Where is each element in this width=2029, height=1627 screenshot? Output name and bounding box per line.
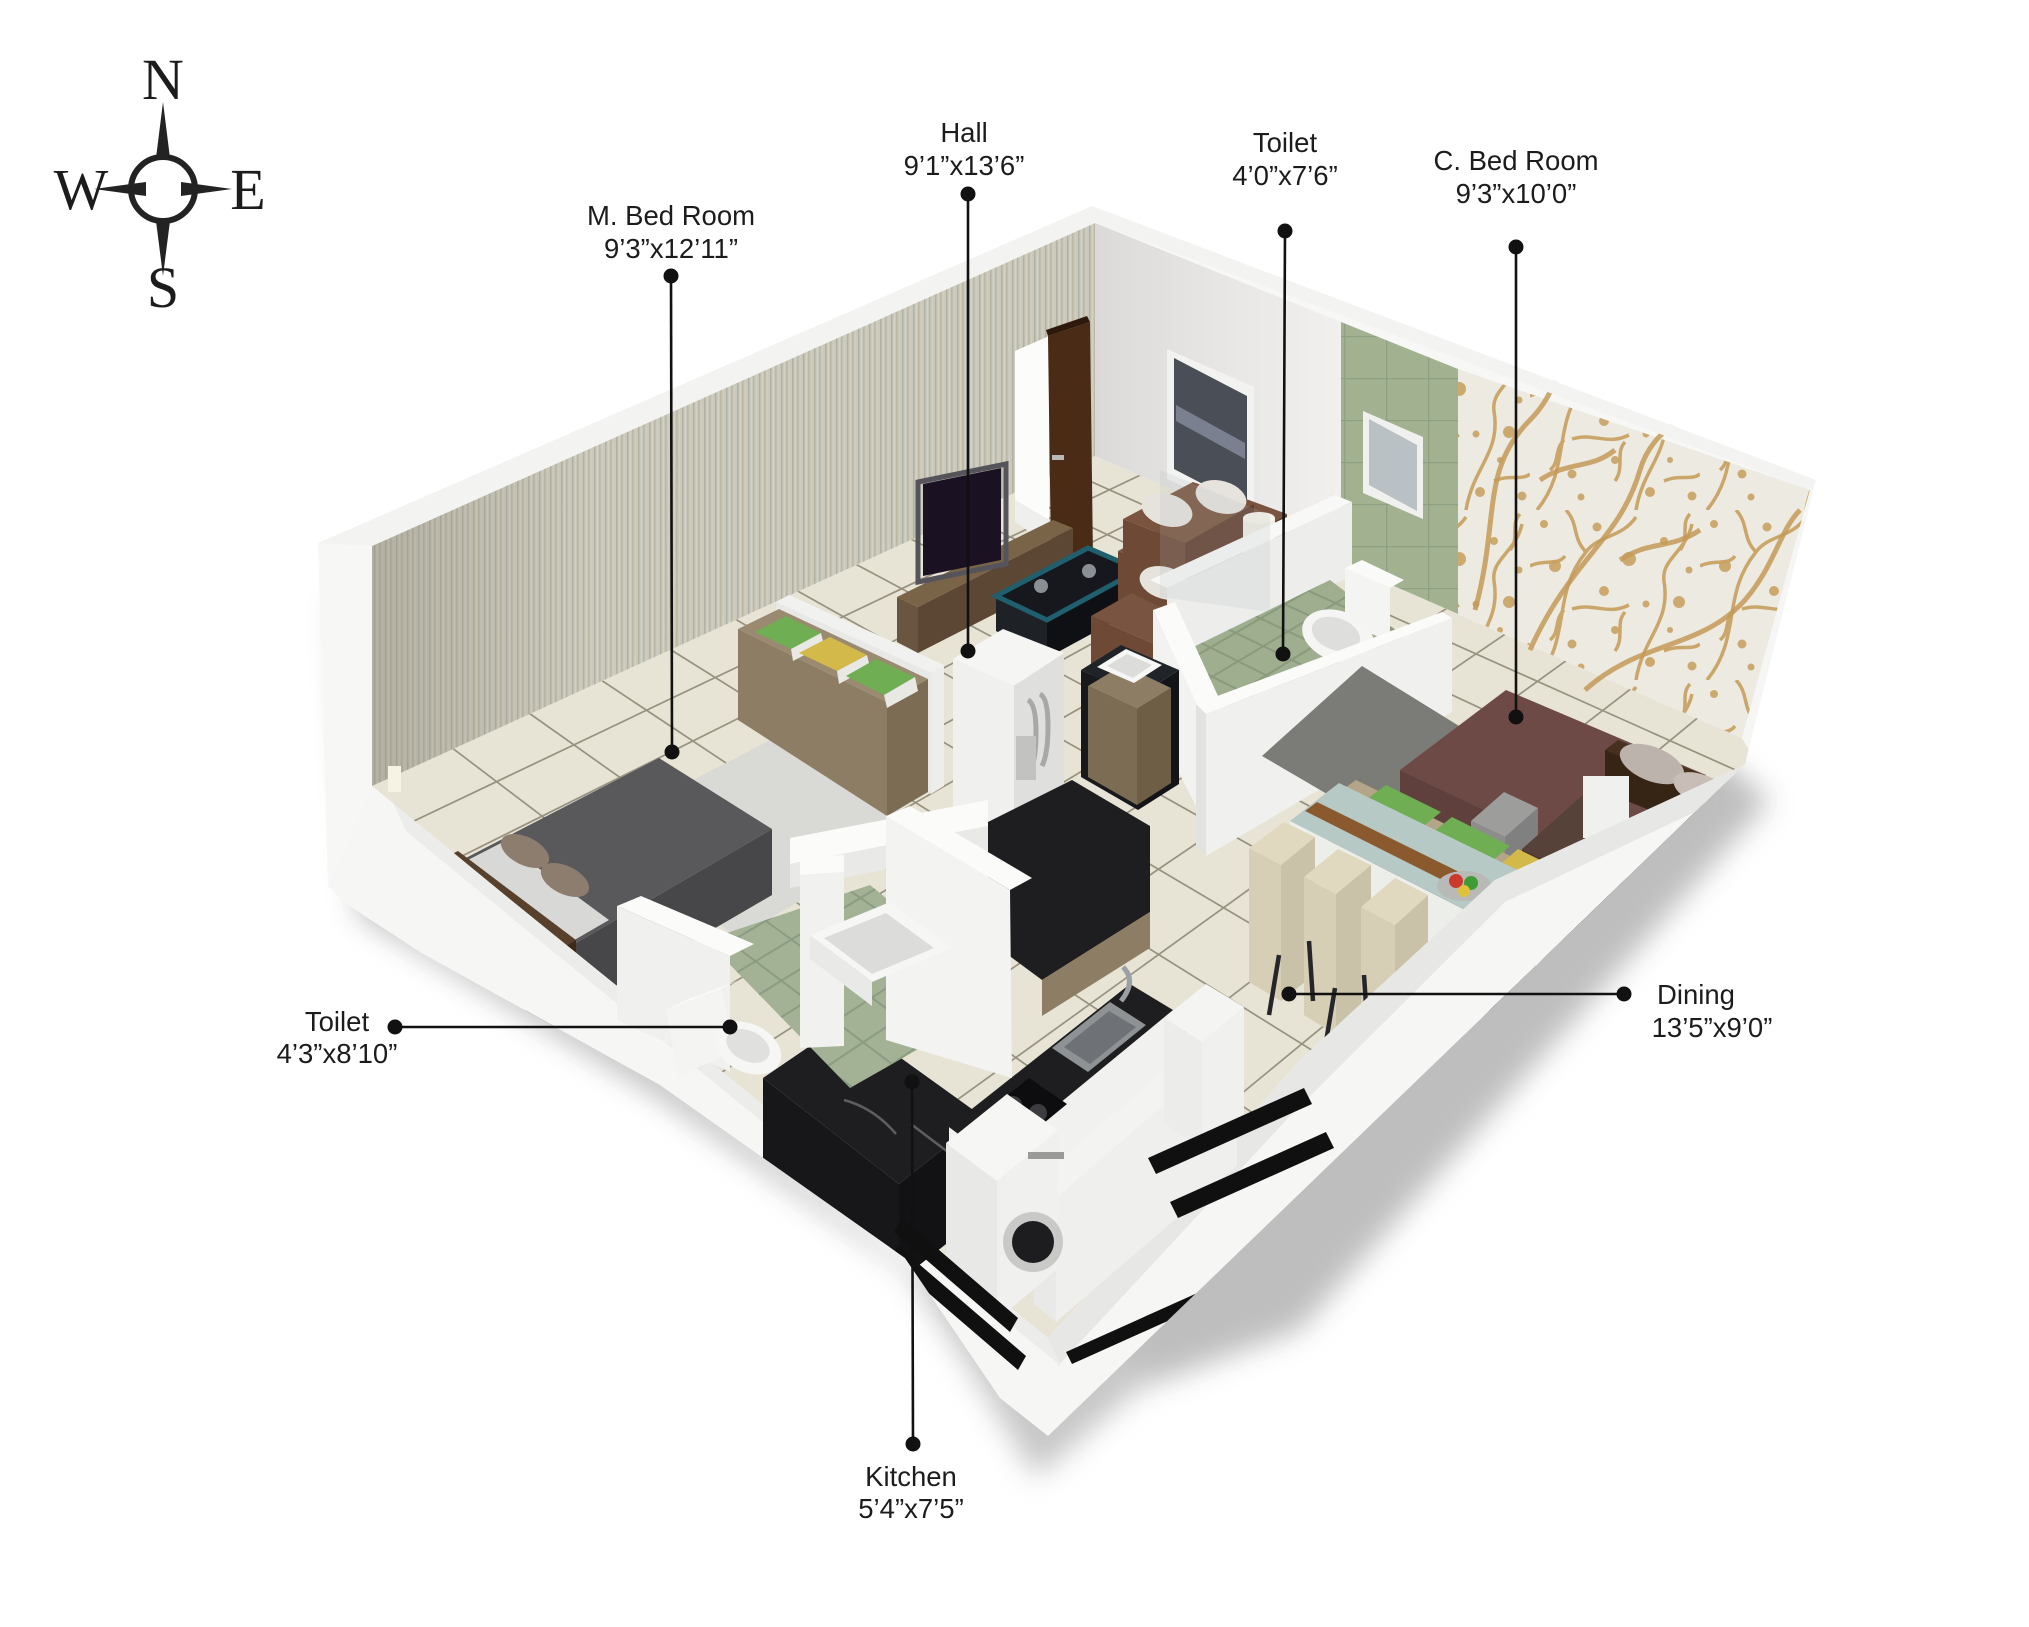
svg-text:9’1”x13’6”: 9’1”x13’6” <box>904 150 1025 181</box>
svg-text:C. Bed Room: C. Bed Room <box>1433 145 1598 176</box>
svg-text:E: E <box>230 157 265 222</box>
svg-text:M. Bed Room: M. Bed Room <box>587 200 755 231</box>
svg-text:4’3”x8’10”: 4’3”x8’10” <box>277 1038 398 1069</box>
svg-text:Kitchen: Kitchen <box>865 1461 957 1492</box>
svg-text:9’3”x10’0”: 9’3”x10’0” <box>1456 178 1577 209</box>
svg-text:Toilet: Toilet <box>305 1006 370 1037</box>
svg-text:4’0”x7’6”: 4’0”x7’6” <box>1232 160 1337 191</box>
svg-text:Dining: Dining <box>1657 979 1735 1010</box>
svg-text:9’3”x12’11”: 9’3”x12’11” <box>604 233 738 264</box>
svg-text:5’4”x7’5”: 5’4”x7’5” <box>858 1493 963 1524</box>
svg-text:N: N <box>142 47 184 112</box>
svg-text:13’5”x9’0”: 13’5”x9’0” <box>1652 1012 1773 1043</box>
svg-text:Hall: Hall <box>940 117 987 148</box>
svg-text:W: W <box>54 157 109 222</box>
svg-text:Toilet: Toilet <box>1253 127 1318 158</box>
svg-text:S: S <box>147 255 179 320</box>
